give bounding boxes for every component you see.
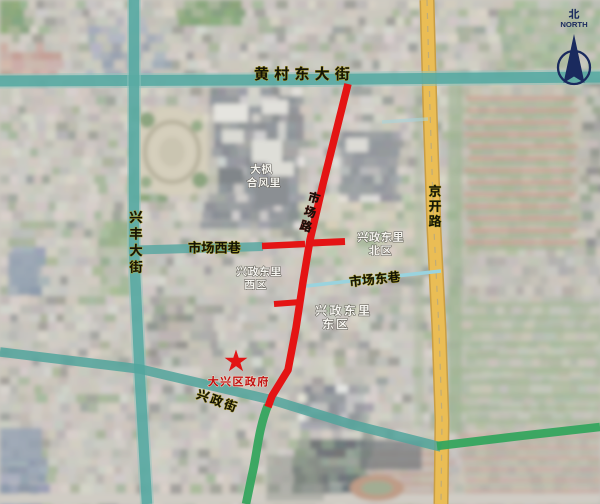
svg-text:NORTH: NORTH [560, 20, 588, 29]
